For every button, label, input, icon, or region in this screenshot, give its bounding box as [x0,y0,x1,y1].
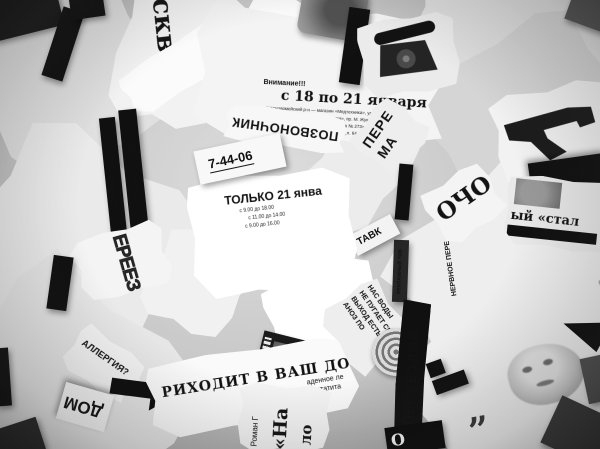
pereezdov-label: ПЕРЕЕЗДОВ [401,329,422,426]
stal-scrap: ый «стал радская бит [502,172,600,255]
kvartirnye-label: КВАРТИРНЫЕ [107,154,120,212]
edor-label: ЁДОР [54,270,66,296]
newspaper-collage-photo: ПЕРЕ ЕЗ осква в кв КВАРТИРНЫЕ ПЕРЕЕЗДЫ В… [0,0,600,449]
tavk-label: ТАВК [356,227,384,248]
roman-label: Роман Г [251,388,262,446]
pere-band-label: ПЕРЕ [54,29,71,59]
ocho-headline: ОЧО [432,172,495,226]
reklamny-label: РЕКЛАМНЫЙ ТОВ [397,248,404,293]
book-cover-scrap: Роман Г «На ло [236,382,332,449]
gruz-label: ГРУЗ [440,375,461,389]
face-shadow [522,366,533,374]
o-mark: О [390,431,406,449]
lo-label: ло [299,395,317,446]
phone-number: 7-44-06 [207,149,254,174]
photo-fragment [514,178,562,209]
reklamny-band: РЕКЛАМНЫЙ ТОВ [392,240,409,302]
ya-label: Я [431,363,440,374]
rotary-phone-icon [365,17,452,90]
tolko-block: ТОЛЬКО 21 янва с 9.00 до 18.00 с 11.00 д… [222,182,328,235]
ez-label: ЕЗ [78,0,95,13]
pereez-left-label: ПЕРЕЕЗ [0,366,6,388]
bitva-band: радская бит [506,224,597,244]
tolko-ad-scrap: ТОЛЬКО 21 янва с 9.00 до 18.00 с 11.00 д… [184,164,361,303]
erez-headline: ЕРЕЕЗ [109,232,143,293]
zakony-label: ЗАКОНЫ [400,178,408,205]
bottom-bar-scrap: О [384,420,445,449]
face-shadow [536,378,555,387]
na-label: «На [270,387,292,449]
dom-headline: ДОМ [62,393,105,420]
bitva-label: радская бит [532,229,571,240]
face-shadow [542,358,553,366]
pereezdy-label: ПЕРЕЕЗДЫ [126,138,141,198]
